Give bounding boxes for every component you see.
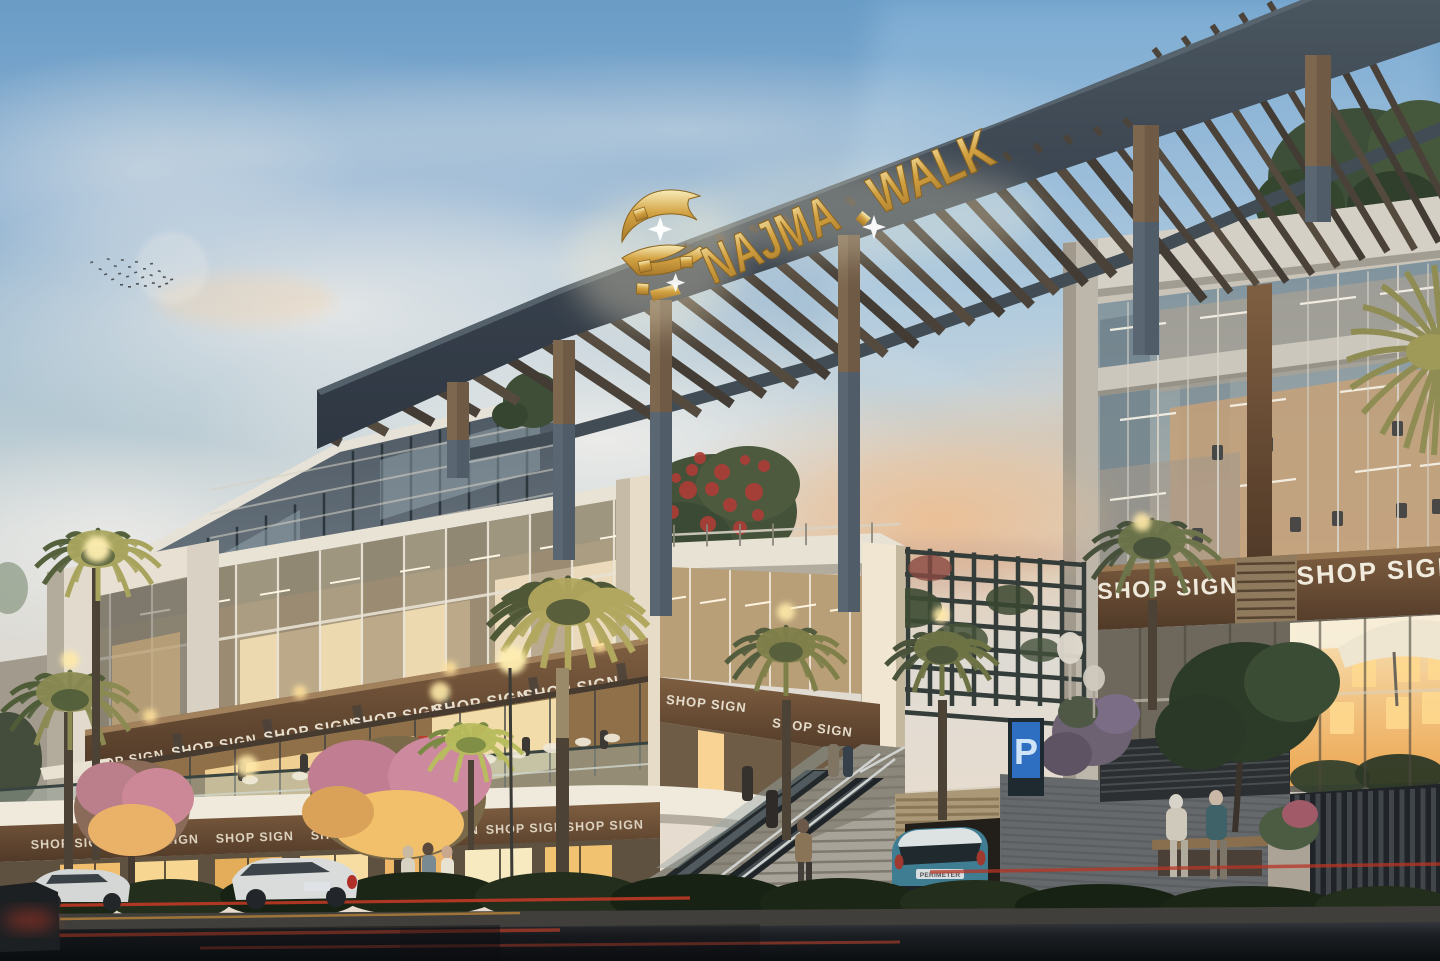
svg-text:SHOP SIGN: SHOP SIGN [216,829,295,846]
svg-text:SHOP SIGN: SHOP SIGN [486,820,565,837]
svg-text:SHOP SIGN: SHOP SIGN [566,818,645,835]
svg-text:P: P [1014,731,1038,772]
